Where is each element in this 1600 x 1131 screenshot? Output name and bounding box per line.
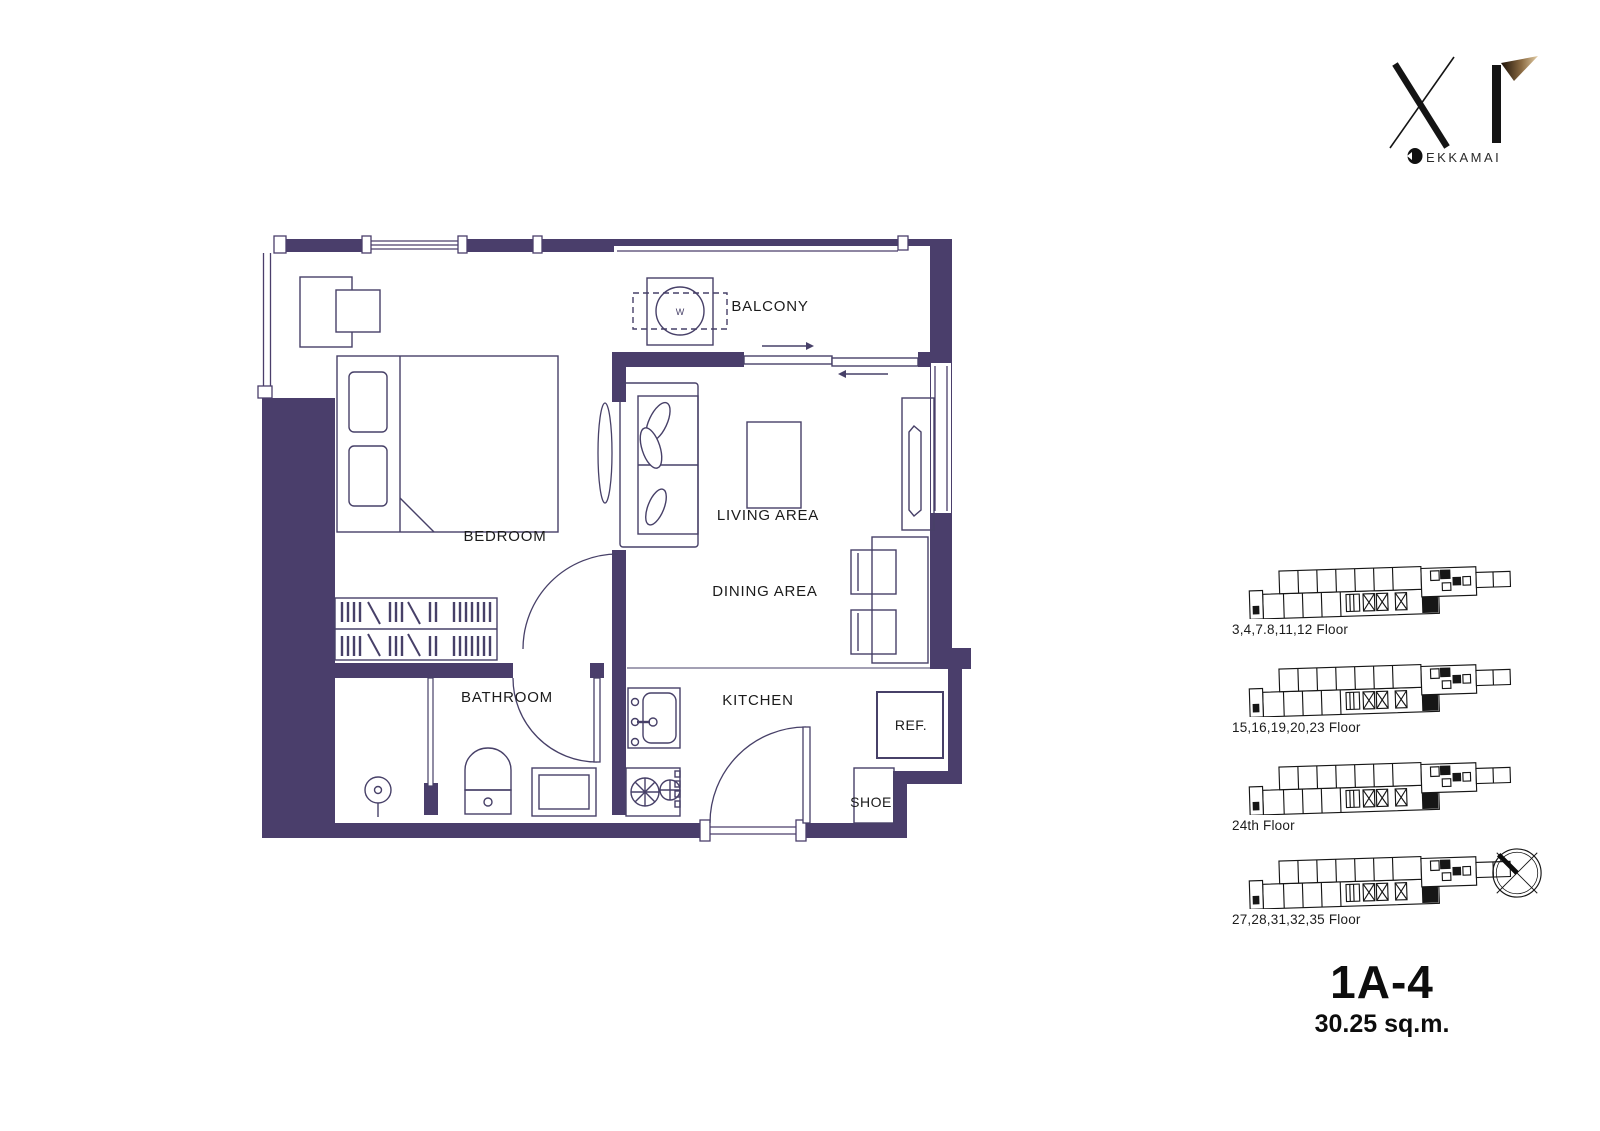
kitchen-sink: [628, 688, 680, 748]
key-plan-row-4: 27,28,31,32,35 Floor: [1232, 856, 1532, 927]
logo-t-icon: [1492, 56, 1538, 143]
key-plan-row-2: 15,16,19,20,23 Floor: [1232, 664, 1532, 735]
key-plan-label-3: 24th Floor: [1232, 818, 1532, 833]
key-plan-row-3: 24th Floor: [1232, 762, 1532, 833]
washer-label: W: [676, 307, 685, 317]
shower-partition: [428, 678, 433, 786]
floor-plan-page: BALCONY BEDROOM LIVING AREA DINING AREA …: [0, 0, 1600, 1131]
key-plan-row-1: 3,4,7.8,11,12 Floor: [1232, 566, 1532, 637]
key-plan-building-4: [1246, 856, 1514, 909]
toilet: [465, 748, 511, 814]
living-area-label: LIVING AREA: [717, 507, 819, 524]
desk: [300, 277, 380, 347]
bedroom-label: BEDROOM: [463, 528, 546, 545]
balcony-label: BALCONY: [731, 298, 808, 315]
logo-location-text: EKKAMAI: [1426, 150, 1501, 165]
wardrobe: [335, 598, 497, 660]
key-plan-building-1: [1246, 566, 1514, 619]
balcony-sliding-door: [744, 342, 918, 378]
stove: [626, 768, 680, 816]
dining-set: [851, 537, 928, 663]
xt-ekkamai-logo: EKKAMAI: [1388, 52, 1540, 170]
coffee-table: [747, 422, 801, 508]
key-plan-label-4: 27,28,31,32,35 Floor: [1232, 912, 1532, 927]
bedroom-door: [523, 403, 618, 649]
bed: [337, 356, 558, 532]
bathroom-sink: [532, 768, 596, 816]
key-plan-label-2: 15,16,19,20,23 Floor: [1232, 720, 1532, 735]
key-plan-building-2: [1246, 664, 1514, 717]
dining-area-label: DINING AREA: [712, 583, 818, 600]
bathroom-label: BATHROOM: [461, 689, 553, 706]
unit-floor-plan: BALCONY BEDROOM LIVING AREA DINING AREA …: [250, 230, 975, 850]
key-plan-building-3: [1246, 762, 1514, 815]
logo-eye-icon: [1407, 148, 1423, 164]
kitchen-label: KITCHEN: [722, 692, 793, 709]
tv-console: [902, 398, 934, 530]
logo-x-icon: [1390, 57, 1454, 148]
refrigerator-label: REF.: [895, 717, 927, 733]
unit-code: 1A-4: [1272, 958, 1492, 1006]
sofa: [620, 383, 698, 547]
unit-area: 30.25 sq.m.: [1272, 1010, 1492, 1039]
shower-head: [365, 777, 391, 817]
compass-icon: [1490, 846, 1544, 900]
shoe-cabinet-label: SHOE: [850, 794, 892, 810]
key-plan-label-1: 3,4,7.8,11,12 Floor: [1232, 622, 1532, 637]
unit-title-block: 1A-4 30.25 sq.m.: [1272, 958, 1492, 1039]
entrance-door: [710, 727, 810, 823]
